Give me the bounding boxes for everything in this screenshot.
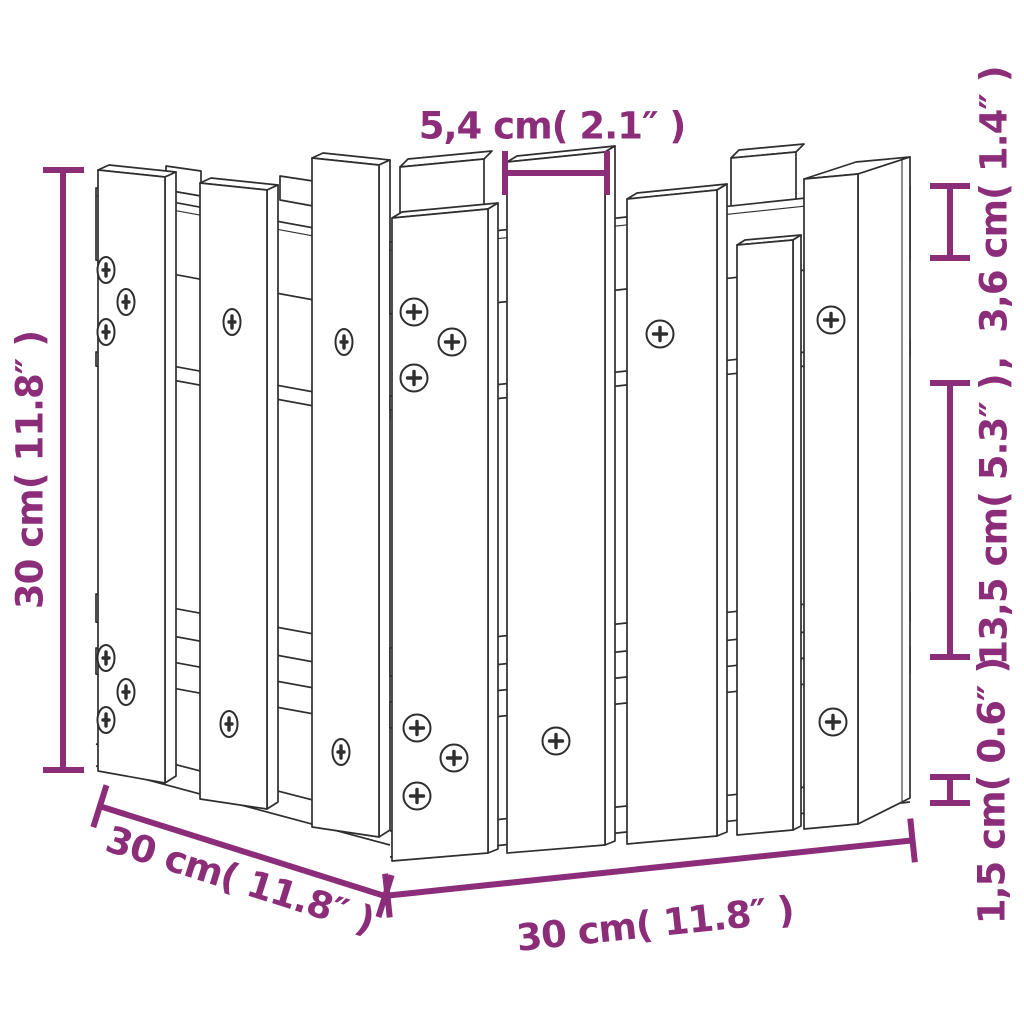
dim-label-rail-height: , 3,6 cm( 1.4″ ) bbox=[973, 66, 1016, 369]
dim-label-top-width: 5,4 cm( 2.1″ ) bbox=[419, 105, 686, 148]
dim-line-right-rail bbox=[930, 186, 970, 258]
product-dimension-diagram: 5,4 cm( 2.1″ ) 30 cm( 11.8″ ) , 3,6 cm( … bbox=[0, 0, 1024, 1024]
dim-line-right-plank bbox=[930, 777, 970, 803]
back-picket-top bbox=[280, 176, 313, 206]
dim-label-plank-height: 1,5 cm( 0.6″ ) bbox=[971, 658, 1014, 925]
dim-line-right-board bbox=[930, 383, 970, 657]
picket-board bbox=[200, 178, 278, 809]
picket-board bbox=[312, 153, 390, 837]
picket-board bbox=[737, 235, 801, 835]
planter-left-face bbox=[96, 153, 390, 845]
picket-board bbox=[627, 184, 727, 844]
dim-label-board-height: 13,5 cm( 5.3″ ) bbox=[973, 374, 1016, 665]
dim-label-left-height: 30 cm( 11.8″ ) bbox=[9, 331, 52, 609]
planter-front-face bbox=[390, 144, 910, 861]
